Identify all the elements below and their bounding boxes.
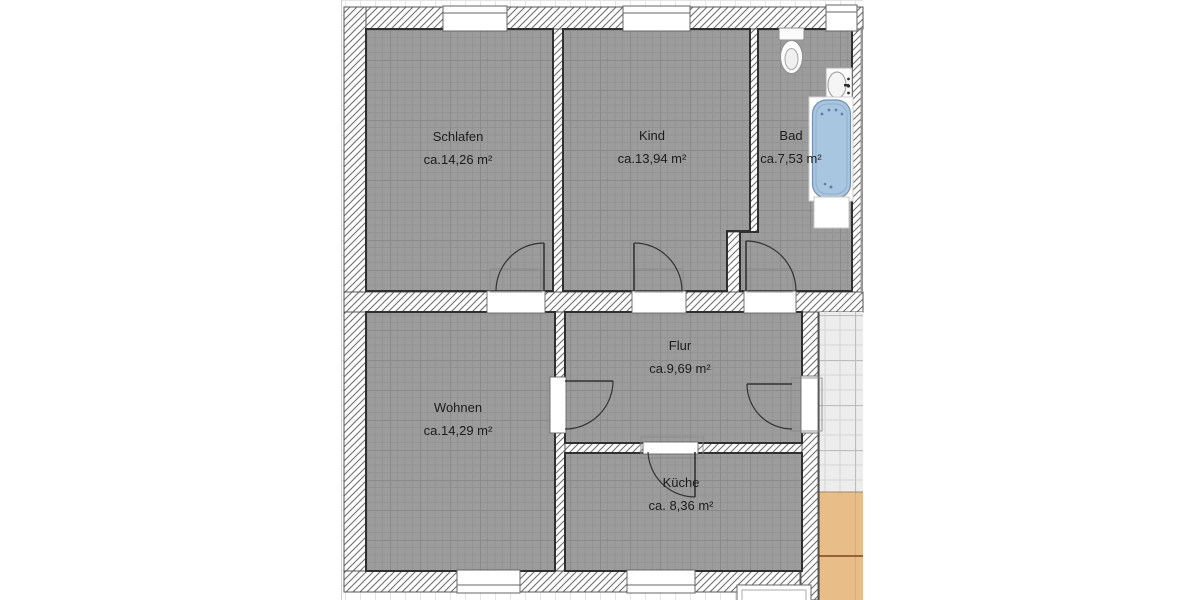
room-wohnen xyxy=(366,312,555,571)
room-schlafen xyxy=(366,29,553,291)
wall-schlafen-kind xyxy=(553,29,563,292)
wall-right-staircase xyxy=(801,312,818,600)
wall-chimney xyxy=(727,232,740,292)
washing-machine xyxy=(814,197,849,228)
neighbor-room-sliver xyxy=(861,29,864,292)
window-schlafen xyxy=(443,6,507,31)
room-flur xyxy=(565,312,802,443)
staircase-area xyxy=(817,312,863,600)
wall-bottom xyxy=(344,571,800,592)
wall-kind-bad xyxy=(750,29,758,232)
window-kueche xyxy=(627,570,695,593)
staircase-landing xyxy=(818,312,863,492)
floor-plan: Schlafen ca.14,26 m² Kind ca.13,94 m² Ba… xyxy=(0,0,1200,600)
building-entrance-door xyxy=(737,585,811,600)
room-kueche xyxy=(565,453,802,571)
wall-top xyxy=(344,7,863,29)
window-wohnen xyxy=(457,570,520,593)
toilet xyxy=(779,28,804,74)
bathtub xyxy=(809,97,853,201)
wall-wohnen-flur xyxy=(555,312,565,571)
room-kind xyxy=(563,29,750,291)
window-bad xyxy=(826,5,857,31)
floor-plan-drawing xyxy=(0,0,1200,600)
wood-stairs xyxy=(818,492,863,600)
window-kind xyxy=(623,6,690,31)
